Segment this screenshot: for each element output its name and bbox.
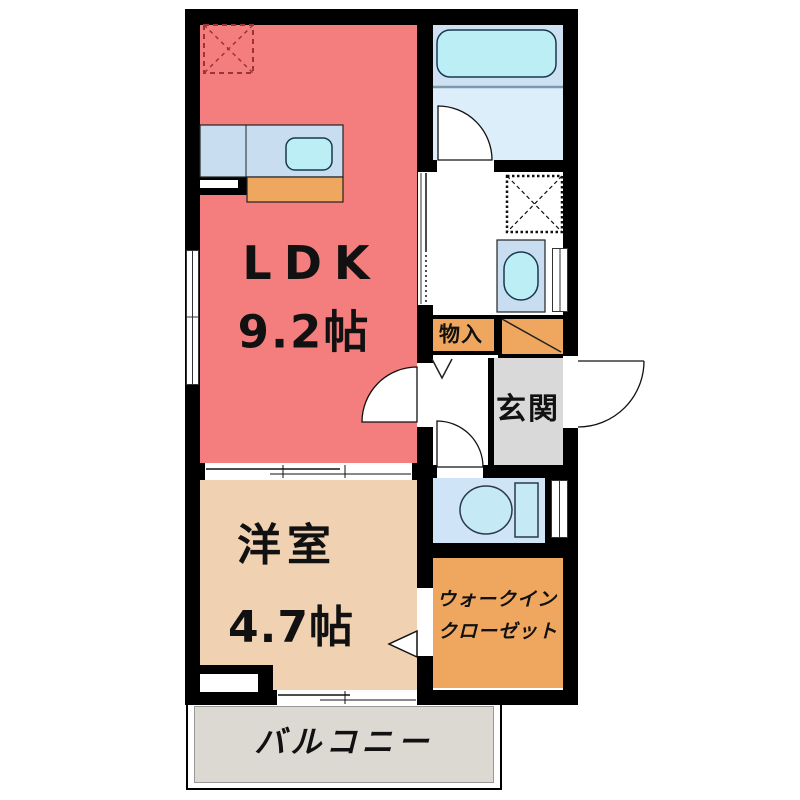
kitchen-chunk-slit — [200, 180, 238, 188]
ldk-size-label: 9.2帖 — [238, 310, 371, 355]
walk-in-closet-label-line1: ウォークイン — [437, 591, 557, 610]
western-room-size-label: 4.7帖 — [228, 606, 354, 650]
walk-in-closet-label-line2: クローゼット — [438, 623, 558, 642]
balcony-door-opening — [277, 690, 417, 705]
window-toilet-right — [551, 480, 568, 538]
floor-plan: LDK 9.2帖 洋室 4.7帖 物入 玄関 ウォークイン クローゼット バルコ… — [0, 0, 800, 800]
wall-top — [185, 9, 578, 25]
bath-door-opening — [437, 160, 494, 172]
toilet-door-opening — [437, 465, 483, 478]
shoe-cabinet — [498, 315, 568, 358]
western-room-label: 洋室 — [237, 524, 337, 568]
sliding-door-ldk-washroom — [418, 172, 433, 305]
entrance-label: 玄関 — [496, 395, 560, 425]
closet-door-opening — [417, 588, 433, 656]
front-door-opening — [563, 356, 578, 428]
western-room — [200, 480, 417, 690]
ldk-door-opening — [417, 363, 433, 427]
front-door-icon — [578, 361, 644, 427]
toilet-room — [433, 478, 545, 543]
bedroom-ps-slot — [200, 674, 258, 692]
wall-toilet-closet — [417, 543, 578, 558]
washroom — [433, 172, 563, 315]
storage-label: 物入 — [439, 325, 483, 346]
bathroom-tub-zone — [433, 25, 563, 87]
balcony-label: バルコニー — [254, 728, 433, 759]
sliding-door-ldk-bedroom — [205, 463, 412, 480]
window-ldk-left — [186, 250, 199, 385]
wall-hall-entrance-divider — [488, 358, 494, 465]
window-washroom-right — [552, 248, 568, 312]
bathroom-floor-zone — [433, 87, 563, 160]
ldk-label: LDK — [242, 240, 381, 286]
